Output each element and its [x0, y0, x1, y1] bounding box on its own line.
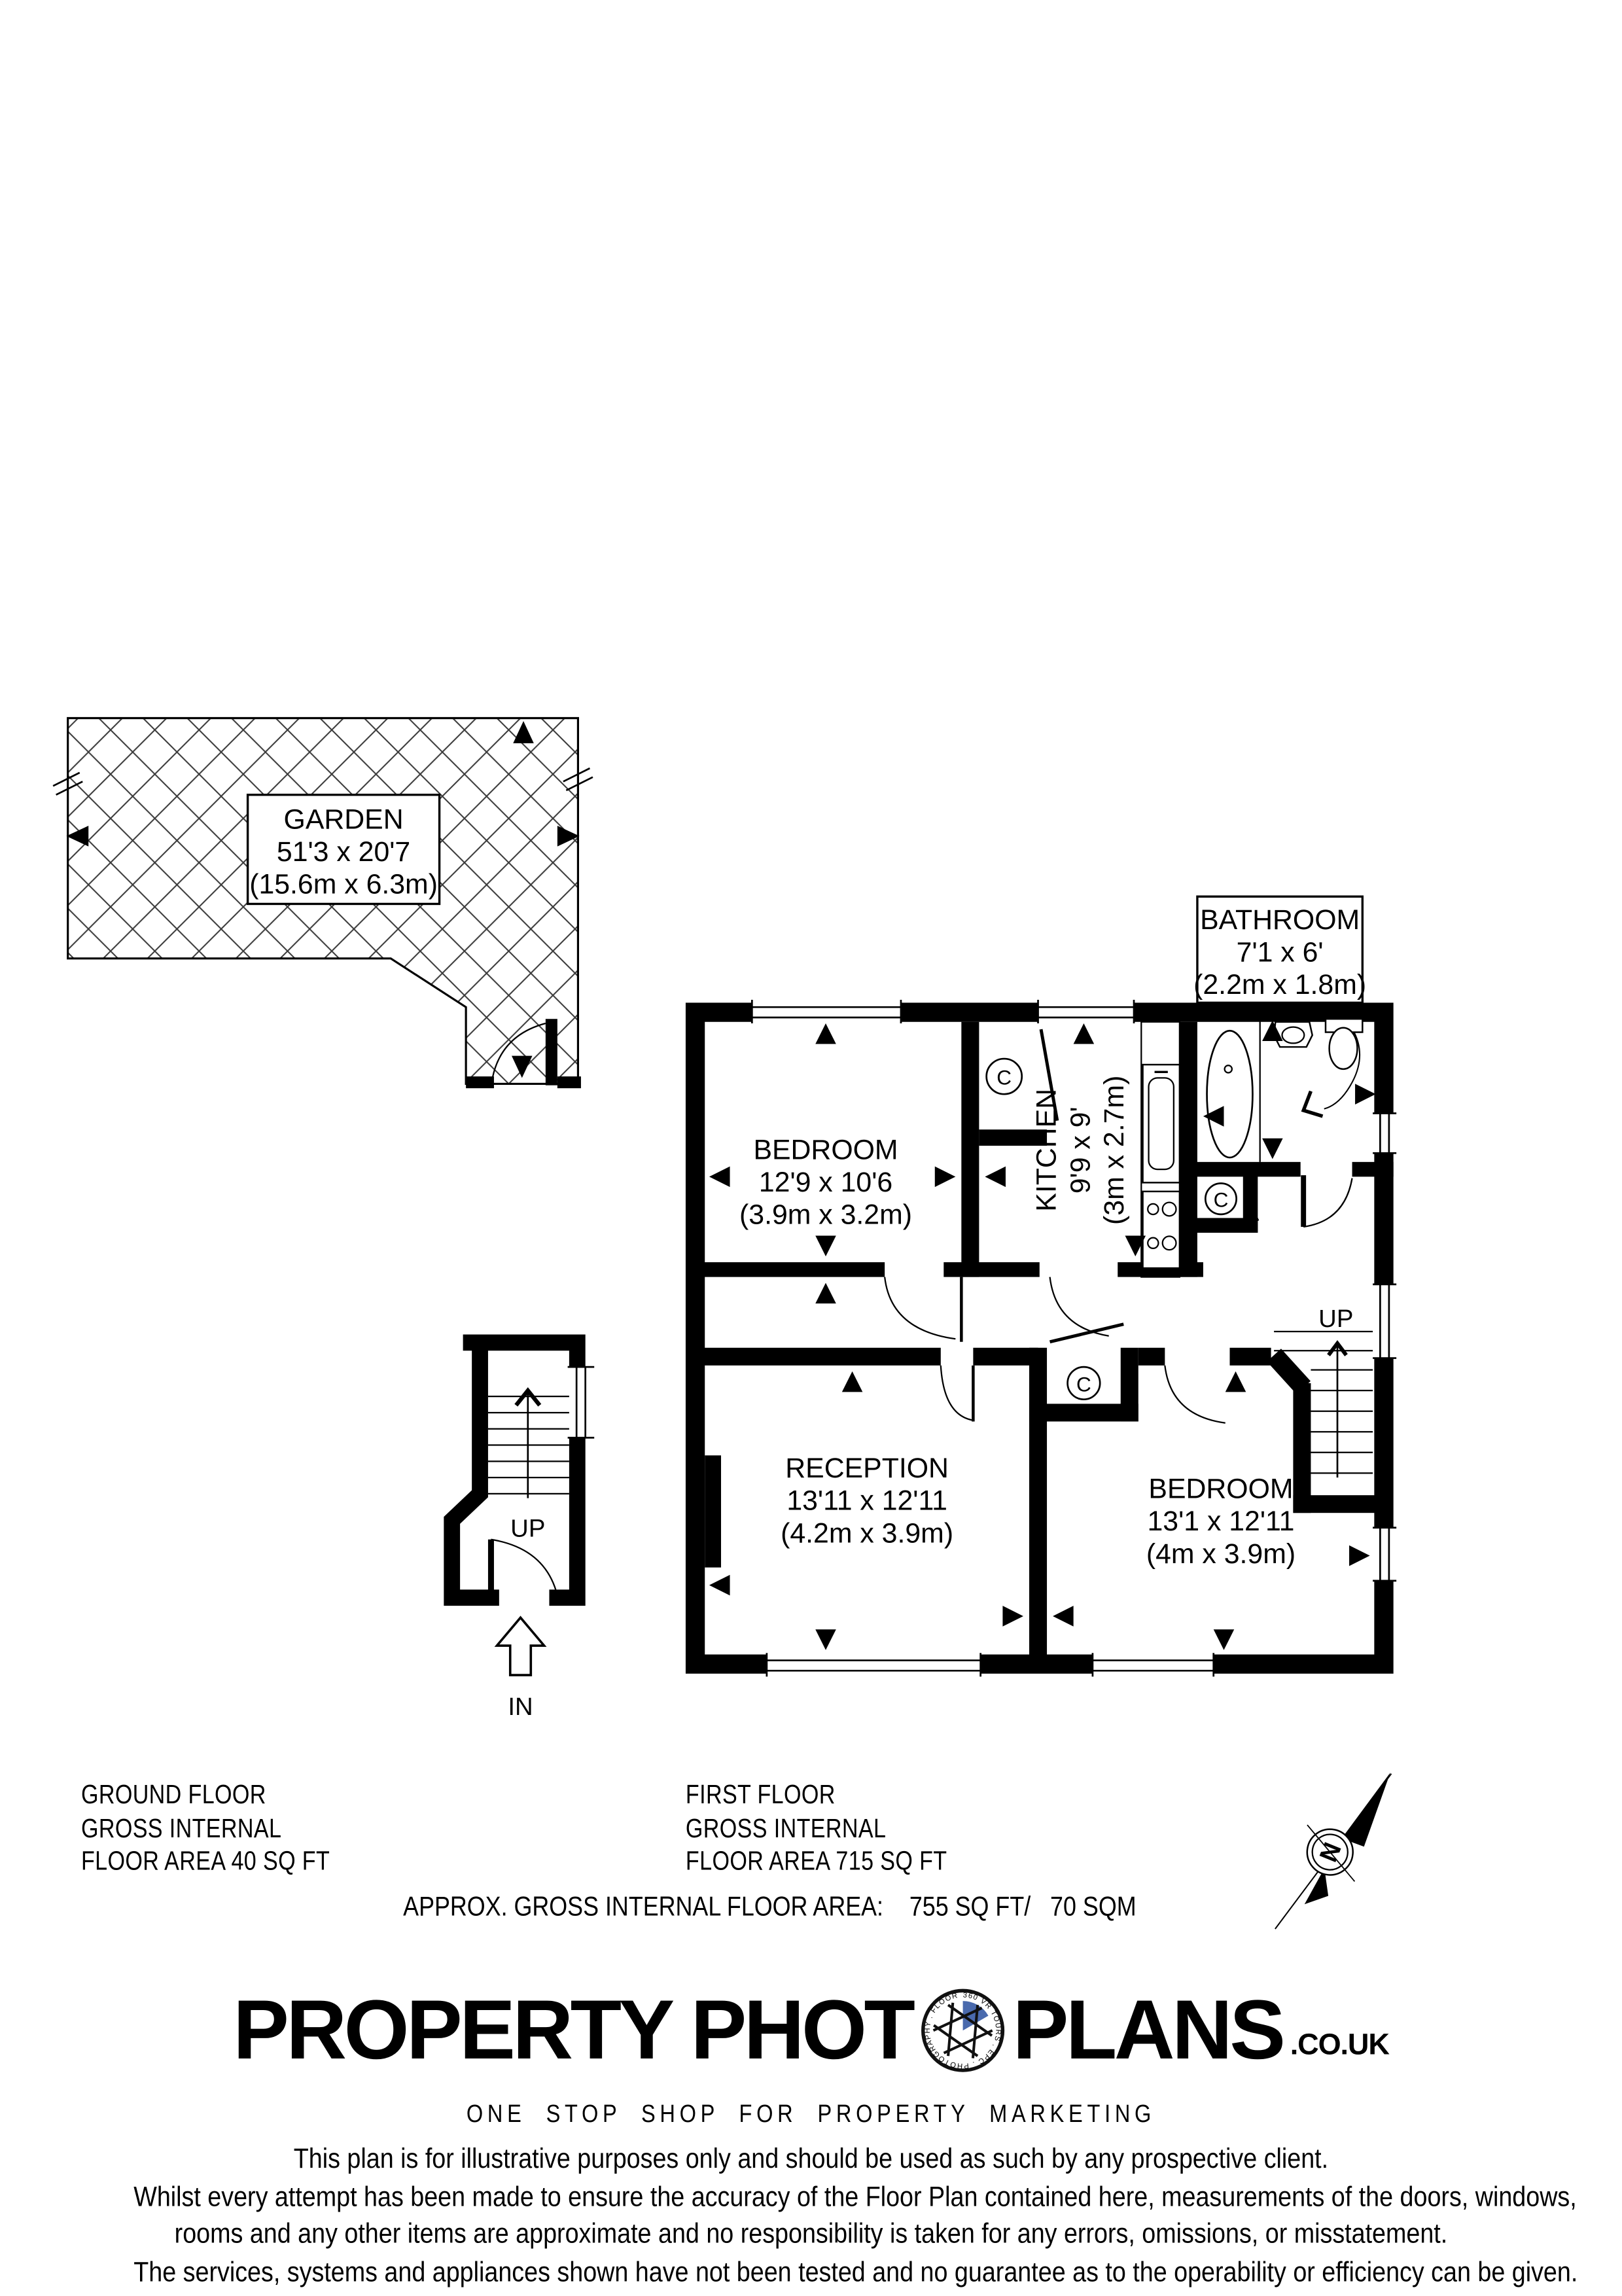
entry-arrow-icon — [497, 1617, 544, 1675]
toilet-bowl-icon — [1330, 1028, 1358, 1069]
wall — [694, 1262, 885, 1277]
first-floor-summary-line2: GROSS INTERNAL — [686, 1812, 947, 1845]
cupboard-label: C — [1076, 1372, 1091, 1396]
window-icon — [752, 1000, 901, 1023]
up-label-ground-floor: UP — [510, 1514, 545, 1542]
in-label: IN — [508, 1693, 533, 1721]
reception-name: RECEPTION — [785, 1453, 949, 1484]
ground-floor-walls — [452, 1343, 578, 1598]
sink-basin-icon — [1282, 1027, 1305, 1044]
bedroom2-dims-ft: 13'1 x 12'11 — [1147, 1506, 1294, 1537]
bedroom1-dims-m: (3.9m x 3.2m) — [739, 1199, 912, 1230]
wall — [961, 1022, 979, 1277]
bathroom-name: BATHROOM — [1200, 904, 1360, 936]
wall — [1293, 1495, 1375, 1513]
garden-dims-ft: 51'3 x 20'7 — [277, 836, 410, 868]
floorplan-drawing: GARDEN 51'3 x 20'7 (15.6m x 6.3m) BATHRO… — [0, 0, 1622, 1976]
kitchen-dims-ft: 9'9 x 9' — [1065, 1106, 1096, 1193]
wall — [1293, 1383, 1311, 1513]
wall — [1029, 1421, 1047, 1665]
bedroom2-dims-m: (4m x 3.9m) — [1146, 1538, 1296, 1570]
entry-door-arc — [491, 1540, 557, 1596]
window-icon — [568, 1367, 595, 1438]
first-floor-summary-line3: FLOOR AREA 715 SQ FT — [686, 1845, 947, 1878]
kitchen-name: KITCHEN — [1031, 1089, 1063, 1212]
window-icon — [1373, 1113, 1396, 1153]
bedroom1-name: BEDROOM — [753, 1134, 898, 1165]
window-icon — [1093, 1653, 1214, 1676]
ground-floor-summary-line3: FLOOR AREA 40 SQ FT — [81, 1845, 330, 1878]
disclaimer: This plan is for illustrative purposes o… — [133, 2141, 1488, 2291]
window-icon — [767, 1653, 981, 1676]
first-floor-plan: UP C C C — [694, 1000, 1396, 1676]
window-icon — [1373, 1284, 1396, 1358]
total-area-line: APPROX. GROSS INTERNAL FLOOR AREA: 755 S… — [108, 1890, 1432, 1923]
ground-floor-summary-line1: GROUND FLOOR — [81, 1778, 330, 1812]
wall — [943, 1262, 1039, 1277]
up-label-first-floor: UP — [1318, 1305, 1353, 1333]
disclaimer-line1: This plan is for illustrative purposes o… — [133, 2141, 1488, 2178]
first-floor-summary-line1: FIRST FLOOR — [686, 1778, 947, 1812]
logo-text-left: PROPERTY PHOT — [233, 1988, 912, 2074]
garden-gate-leaf — [546, 1019, 557, 1085]
logo: PROPERTY PHOT 360 VR TOURS . EPC . PHOTO… — [0, 1988, 1622, 2074]
aperture-logo-icon: 360 VR TOURS . EPC . PHOTOGRAPHY . FLOOR… — [920, 1988, 1006, 2074]
garden-gate-jamb-right — [557, 1076, 581, 1088]
bathroom-callout: BATHROOM 7'1 x 6' (2.2m x 1.8m) — [1193, 896, 1366, 1002]
bedroom1-dims-ft: 12'9 x 10'6 — [759, 1167, 892, 1198]
wall — [1180, 1022, 1197, 1277]
ground-floor-summary: GROUND FLOOR GROSS INTERNAL FLOOR AREA 4… — [81, 1778, 330, 1878]
window-icon — [1038, 1000, 1134, 1023]
garden-name: GARDEN — [284, 804, 404, 836]
reception-dims-m: (4.2m x 3.9m) — [781, 1517, 953, 1549]
disclaimer-line2: Whilst every attempt has been made to en… — [133, 2179, 1488, 2216]
logo-tagline: ONE STOP SHOP FOR PROPERTY MARKETING — [122, 2100, 1500, 2129]
wall — [1230, 1348, 1271, 1366]
reception-dims-ft: 13'11 x 12'11 — [786, 1485, 947, 1517]
floorplan-page: GARDEN 51'3 x 20'7 (15.6m x 6.3m) BATHRO… — [0, 0, 1622, 2296]
wall — [1029, 1404, 1138, 1421]
first-floor-summary: FIRST FLOOR GROSS INTERNAL FLOOR AREA 71… — [686, 1778, 947, 1878]
window-icon — [1373, 1528, 1396, 1581]
ground-floor-summary-line2: GROSS INTERNAL — [81, 1812, 330, 1845]
wall — [973, 1348, 1038, 1366]
chimney-breast — [705, 1455, 721, 1567]
cupboard-label: C — [1214, 1188, 1229, 1212]
cupboard-label: C — [996, 1066, 1012, 1089]
bathroom-dims-m: (2.2m x 1.8m) — [1193, 969, 1366, 1000]
logo-text-right: PLANS — [1013, 1988, 1283, 2074]
bathroom-dims-ft: 7'1 x 6' — [1237, 936, 1324, 968]
hob-icon — [1143, 1192, 1180, 1268]
bathtub-icon — [1207, 1031, 1253, 1157]
bedroom2-name: BEDROOM — [1148, 1474, 1293, 1505]
logo-domain-suffix: .CO.UK — [1290, 2029, 1389, 2063]
garden-dims-m: (15.6m x 6.3m) — [249, 869, 438, 900]
bath-drain-icon — [1225, 1065, 1232, 1072]
disclaimer-line4: The services, systems and appliances sho… — [133, 2254, 1488, 2291]
disclaimer-line3: rooms and any other items are approximat… — [133, 2216, 1488, 2253]
kitchen-dims-m: (3m x 2.7m) — [1099, 1076, 1130, 1225]
garden-area: GARDEN 51'3 x 20'7 (15.6m x 6.3m) — [53, 718, 593, 1089]
wall — [694, 1348, 940, 1366]
ground-floor-plan: UP IN — [452, 1343, 594, 1721]
wall — [1138, 1348, 1165, 1366]
garden-gate-jamb-left — [466, 1076, 494, 1088]
wall — [1352, 1162, 1394, 1177]
wall — [1190, 1218, 1258, 1233]
wall — [1190, 1162, 1301, 1177]
